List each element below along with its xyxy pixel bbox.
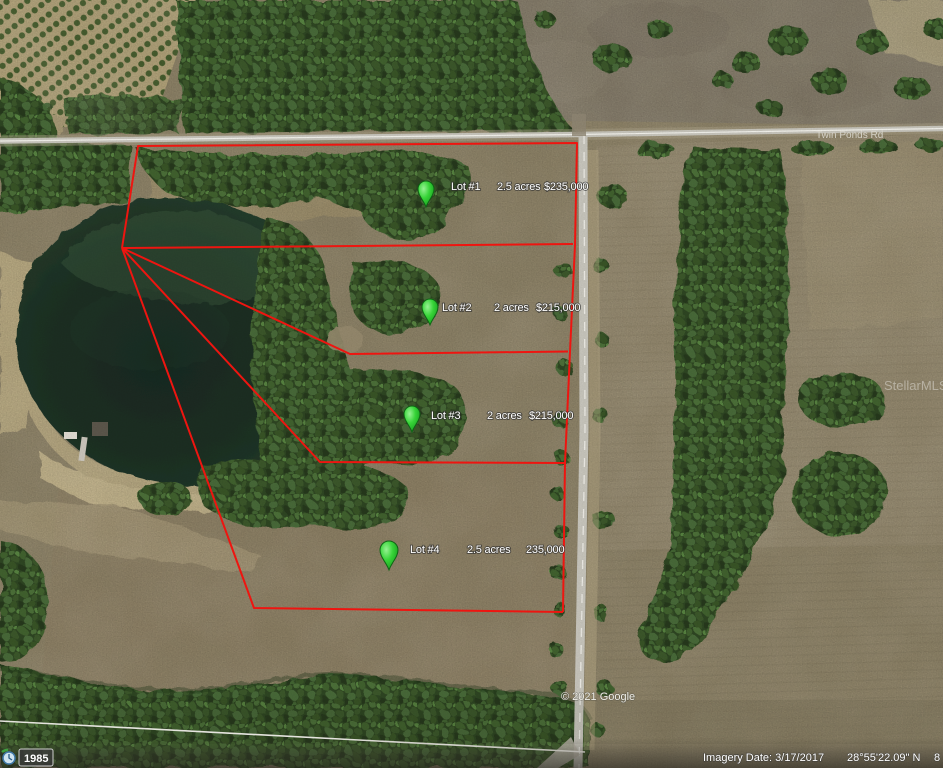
svg-text:2 acres: 2 acres [494, 302, 529, 314]
svg-text:$215,000: $215,000 [536, 302, 580, 314]
svg-text:Lot #3: Lot #3 [431, 410, 460, 422]
svg-text:2.5 acres: 2.5 acres [497, 181, 541, 193]
svg-text:1985: 1985 [24, 753, 48, 765]
svg-text:StellarMLS: StellarMLS [884, 378, 943, 393]
svg-text:28°55'22.09" N: 28°55'22.09" N [847, 752, 920, 764]
svg-text:Twin Ponds Rd: Twin Ponds Rd [816, 130, 883, 141]
svg-text:Imagery Date: 3/17/2017: Imagery Date: 3/17/2017 [703, 752, 824, 764]
svg-text:Lot #2: Lot #2 [442, 302, 471, 314]
svg-text:8: 8 [934, 752, 940, 764]
svg-text:Lot #1: Lot #1 [451, 181, 480, 193]
svg-text:2.5 acres: 2.5 acres [467, 544, 511, 556]
svg-text:$215,000: $215,000 [529, 410, 573, 422]
svg-text:$235,000: $235,000 [544, 181, 588, 193]
svg-text:Lot #4: Lot #4 [410, 544, 439, 556]
svg-text:2 acres: 2 acres [487, 410, 522, 422]
svg-text:235,000: 235,000 [526, 544, 564, 556]
